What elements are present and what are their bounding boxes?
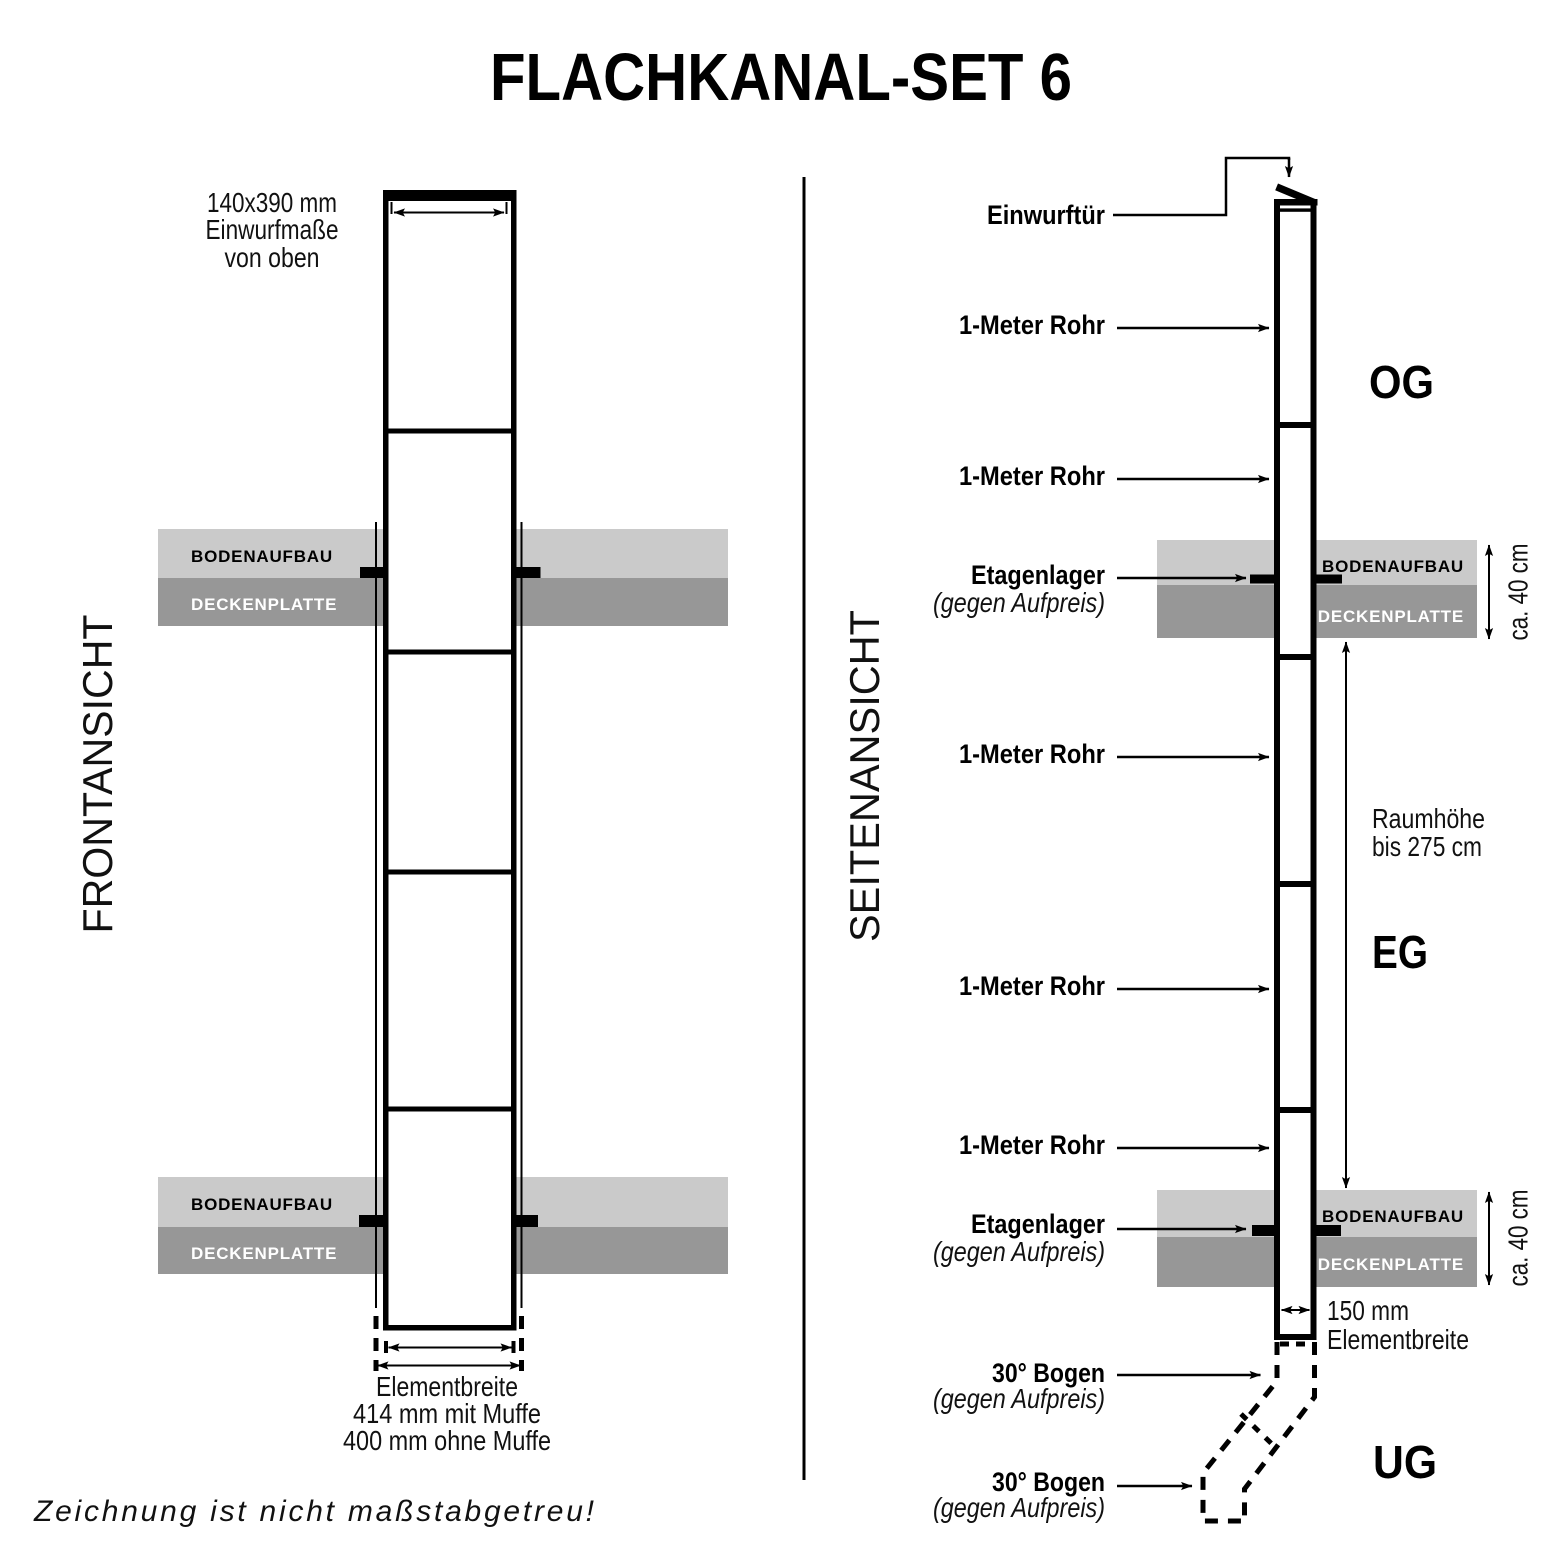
svg-text:BODENAUFBAU: BODENAUFBAU <box>191 1195 333 1214</box>
svg-text:(gegen Aufpreis): (gegen Aufpreis) <box>933 1236 1105 1267</box>
svg-text:OG: OG <box>1369 356 1434 408</box>
svg-text:von oben: von oben <box>225 242 320 273</box>
svg-text:(gegen Aufpreis): (gegen Aufpreis) <box>933 1492 1105 1523</box>
svg-text:DECKENPLATTE: DECKENPLATTE <box>1318 607 1464 626</box>
svg-text:1-Meter Rohr: 1-Meter Rohr <box>959 739 1105 769</box>
svg-text:Raumhöhe: Raumhöhe <box>1372 803 1485 834</box>
svg-text:Zeichnung ist nicht maßstabget: Zeichnung ist nicht maßstabgetreu! <box>33 1495 595 1528</box>
svg-text:1-Meter Rohr: 1-Meter Rohr <box>959 461 1105 491</box>
svg-text:DECKENPLATTE: DECKENPLATTE <box>191 1244 337 1263</box>
svg-text:ca. 40 cm: ca. 40 cm <box>1502 544 1533 641</box>
svg-text:(gegen Aufpreis): (gegen Aufpreis) <box>933 1383 1105 1414</box>
svg-text:400 mm ohne Muffe: 400 mm ohne Muffe <box>343 1425 551 1456</box>
svg-text:Einwurftür: Einwurftür <box>987 200 1105 230</box>
svg-text:BODENAUFBAU: BODENAUFBAU <box>191 547 333 566</box>
svg-text:Elementbreite: Elementbreite <box>1327 1324 1469 1355</box>
svg-text:Etagenlager: Etagenlager <box>971 1209 1105 1239</box>
svg-text:FRONTANSICHT: FRONTANSICHT <box>74 615 121 934</box>
svg-text:BODENAUFBAU: BODENAUFBAU <box>1322 1207 1464 1226</box>
svg-text:150 mm: 150 mm <box>1327 1295 1409 1326</box>
svg-text:1-Meter Rohr: 1-Meter Rohr <box>959 310 1105 340</box>
svg-text:ca. 40 cm: ca. 40 cm <box>1502 1190 1533 1287</box>
svg-text:Etagenlager: Etagenlager <box>971 560 1105 590</box>
svg-text:SEITENANSICHT: SEITENANSICHT <box>841 610 888 942</box>
svg-text:BODENAUFBAU: BODENAUFBAU <box>1322 557 1464 576</box>
svg-text:1-Meter Rohr: 1-Meter Rohr <box>959 1130 1105 1160</box>
svg-text:DECKENPLATTE: DECKENPLATTE <box>191 595 337 614</box>
svg-text:DECKENPLATTE: DECKENPLATTE <box>1318 1255 1464 1274</box>
svg-text:EG: EG <box>1372 926 1428 978</box>
svg-text:FLACHKANAL-SET 6: FLACHKANAL-SET 6 <box>490 40 1072 115</box>
svg-text:1-Meter Rohr: 1-Meter Rohr <box>959 971 1105 1001</box>
svg-text:bis 275 cm: bis 275 cm <box>1372 831 1482 862</box>
svg-text:UG: UG <box>1373 1436 1437 1488</box>
svg-text:Einwurfmaße: Einwurfmaße <box>206 214 339 245</box>
svg-text:(gegen Aufpreis): (gegen Aufpreis) <box>933 587 1105 618</box>
